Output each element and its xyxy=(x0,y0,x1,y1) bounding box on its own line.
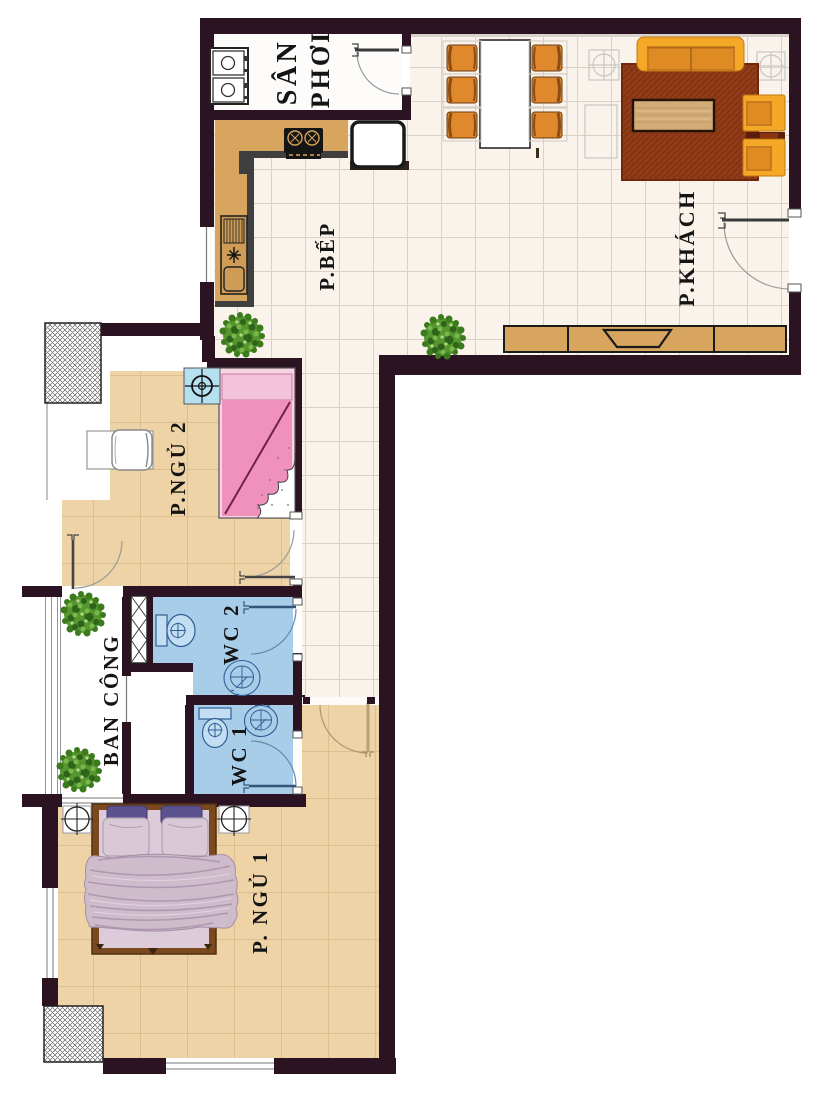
svg-text:P.BẾP: P.BẾP xyxy=(315,221,339,291)
svg-text:P. NGỦ 1: P. NGỦ 1 xyxy=(248,850,272,954)
svg-text:P.NGỦ 2: P.NGỦ 2 xyxy=(166,420,190,516)
svg-text:WC 1: WC 1 xyxy=(227,724,251,786)
svg-text:WC 2: WC 2 xyxy=(219,603,243,665)
svg-text:PHƠI: PHƠI xyxy=(306,30,335,108)
svg-text:BAN CÔNG: BAN CÔNG xyxy=(99,634,123,767)
svg-text:P.KHÁCH: P.KHÁCH xyxy=(674,189,699,307)
svg-text:SÂN: SÂN xyxy=(272,39,303,106)
